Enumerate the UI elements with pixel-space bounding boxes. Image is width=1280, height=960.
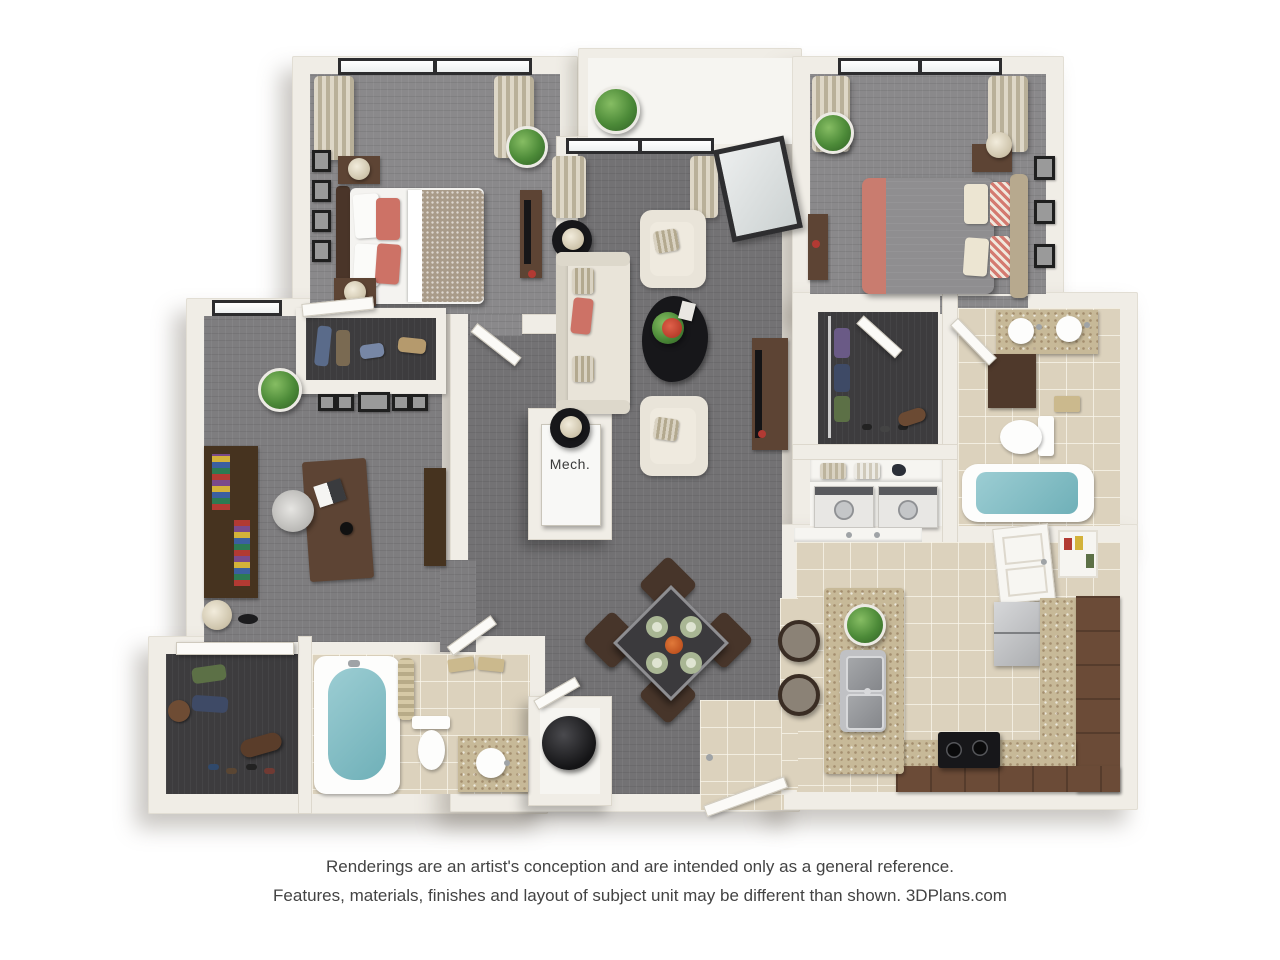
floor-lamp-accent bbox=[238, 614, 258, 624]
table-centerpiece bbox=[665, 636, 683, 654]
table-lamp bbox=[348, 158, 370, 180]
sink-faucet bbox=[864, 688, 871, 695]
washer-door bbox=[834, 500, 854, 520]
sink-faucet bbox=[1084, 322, 1090, 328]
coral-pillow bbox=[570, 297, 594, 335]
window-pane bbox=[215, 303, 279, 313]
table-lamp bbox=[986, 132, 1012, 158]
closet-shoes bbox=[264, 768, 275, 774]
pantry-door-panel bbox=[1002, 533, 1045, 565]
kitchen-cabinets-bottom bbox=[896, 766, 1120, 792]
hookup-valve bbox=[846, 532, 852, 538]
window-pane bbox=[569, 141, 638, 151]
bathtub-water bbox=[976, 472, 1078, 514]
hanging-clothes bbox=[834, 396, 850, 422]
closet-handbag bbox=[168, 700, 190, 722]
hookup-valve bbox=[874, 532, 880, 538]
washer-control-panel bbox=[815, 487, 873, 495]
closet-shoes bbox=[862, 424, 872, 430]
hanging-clothes bbox=[834, 364, 850, 392]
bed-2-coral-throw bbox=[862, 178, 886, 294]
bed-1-sheet-fold bbox=[408, 190, 422, 302]
bedroom-2-window bbox=[838, 58, 1002, 75]
front-door-handle bbox=[706, 754, 713, 761]
decor-red-accent bbox=[528, 270, 536, 278]
toilet-bowl bbox=[1000, 420, 1042, 454]
spice-shelf bbox=[1058, 530, 1098, 578]
vanity-sink bbox=[1008, 318, 1034, 344]
floor-plan-render: Mech. bbox=[0, 0, 1280, 960]
bath-towel bbox=[1054, 396, 1080, 412]
hanging-clothes bbox=[834, 328, 850, 358]
bookshelf-books bbox=[234, 520, 250, 586]
closet-handbag bbox=[397, 337, 426, 355]
stove-burner bbox=[946, 742, 962, 758]
laundry-basket bbox=[820, 463, 846, 479]
bed-1-blanket bbox=[420, 190, 484, 302]
coral-pillow bbox=[375, 243, 402, 285]
desk-lamp bbox=[340, 522, 353, 535]
sink-faucet bbox=[504, 760, 510, 766]
vessel-sink bbox=[476, 748, 506, 778]
gallery-frame bbox=[392, 394, 410, 411]
dryer bbox=[878, 486, 938, 528]
table-lamp bbox=[562, 228, 584, 250]
wall-art-frame bbox=[1034, 244, 1055, 268]
wall-art-frame bbox=[312, 180, 331, 202]
wall-art-frame bbox=[312, 240, 331, 262]
place-setting-plate bbox=[680, 616, 702, 638]
vanity-sink bbox=[1056, 316, 1082, 342]
closet-bath-divider-wall bbox=[298, 636, 312, 814]
spice-jar bbox=[1075, 536, 1083, 550]
window-pane bbox=[437, 61, 529, 72]
living-room-window bbox=[566, 138, 714, 154]
striped-pillow bbox=[572, 268, 594, 294]
bedroom-1-wall-stub bbox=[522, 314, 558, 334]
place-setting-plate bbox=[646, 652, 668, 674]
mech-closet-label: Mech. bbox=[530, 456, 610, 472]
wall-art-frame bbox=[312, 210, 331, 232]
toilet-tank bbox=[412, 716, 450, 729]
pantry-door bbox=[992, 523, 1056, 604]
coral-pillow bbox=[376, 198, 400, 240]
island-plant bbox=[844, 604, 886, 646]
bed-2-headboard bbox=[1010, 174, 1028, 298]
tv-screen bbox=[755, 350, 762, 438]
closet-laundry-wall bbox=[792, 444, 958, 460]
gallery-frame bbox=[358, 392, 390, 412]
window-pane bbox=[922, 61, 999, 72]
balcony-plant bbox=[592, 86, 640, 134]
gallery-frame bbox=[318, 394, 336, 411]
kitchen-hookup-counter bbox=[794, 528, 922, 542]
spice-jar bbox=[1064, 538, 1072, 550]
gallery-frame bbox=[410, 394, 428, 411]
potted-plant bbox=[258, 368, 302, 412]
office-chair bbox=[272, 490, 314, 532]
cream-pillow bbox=[964, 184, 988, 224]
tub-faucet bbox=[348, 660, 360, 667]
office-window bbox=[212, 300, 282, 316]
window-pane bbox=[642, 141, 711, 151]
disclaimer-text: Renderings are an artist's conception an… bbox=[0, 852, 1280, 910]
bedroom-1-curtain-left bbox=[314, 76, 354, 160]
closet-shoes bbox=[226, 768, 237, 774]
washer bbox=[814, 486, 874, 528]
dryer-door bbox=[898, 500, 918, 520]
closet-shoes bbox=[208, 764, 219, 770]
table-lamp bbox=[560, 416, 582, 438]
spice-jar bbox=[1086, 554, 1094, 568]
office-desk bbox=[302, 458, 374, 582]
red-striped-pillow bbox=[990, 182, 1010, 226]
cream-pillow bbox=[963, 237, 990, 277]
disclaimer-line-1: Renderings are an artist's conception an… bbox=[0, 852, 1280, 881]
striped-pillow bbox=[572, 356, 594, 382]
bath-towel bbox=[477, 657, 504, 673]
detergent-bottle bbox=[892, 464, 906, 476]
closet-shoes bbox=[880, 426, 890, 432]
pantry-door-panel bbox=[1005, 565, 1048, 597]
living-curtain-right bbox=[690, 156, 718, 218]
striped-pillow bbox=[652, 228, 679, 254]
office-cabinet bbox=[424, 468, 446, 566]
water-heater bbox=[542, 716, 596, 770]
wall-art-frame bbox=[1034, 200, 1055, 224]
closet-rod bbox=[828, 316, 831, 438]
sofa-armrest bbox=[556, 252, 630, 266]
bathtub-water bbox=[328, 668, 386, 780]
entry-floor bbox=[700, 700, 782, 794]
bedroom-1-window bbox=[338, 58, 532, 75]
stove-cooktop bbox=[938, 732, 1000, 768]
pantry-door-knob bbox=[1041, 559, 1048, 566]
living-curtain-left bbox=[552, 156, 586, 218]
wall-art-frame bbox=[1034, 156, 1055, 180]
stove-burner bbox=[972, 740, 988, 756]
disclaimer-line-2: Features, materials, finishes and layout… bbox=[0, 881, 1280, 910]
vanity-cabinet bbox=[988, 354, 1036, 408]
window-pane bbox=[341, 61, 433, 72]
place-setting-plate bbox=[646, 616, 668, 638]
laundry-basket bbox=[854, 463, 880, 479]
floor-lamp bbox=[202, 600, 232, 630]
dryer-control-panel bbox=[879, 487, 937, 495]
decor-red-accent bbox=[758, 430, 766, 438]
toilet-bowl bbox=[418, 730, 445, 770]
walkin-closet-3-sliding-door bbox=[176, 642, 294, 655]
kitchen-cabinets-right bbox=[1076, 596, 1120, 792]
gallery-frame bbox=[336, 394, 354, 411]
decor-red-accent bbox=[812, 240, 820, 248]
sink-basin bbox=[846, 694, 884, 730]
hanging-clothes bbox=[191, 695, 228, 713]
hanging-clothes bbox=[336, 330, 350, 366]
sink-faucet bbox=[1036, 324, 1042, 330]
red-flowers bbox=[662, 318, 682, 338]
red-striped-pillow bbox=[990, 236, 1010, 278]
place-setting-plate bbox=[680, 652, 702, 674]
shower-curtain bbox=[398, 658, 414, 720]
potted-plant bbox=[812, 112, 854, 154]
bar-stool bbox=[778, 620, 820, 662]
bar-stool bbox=[778, 674, 820, 716]
bookshelf-books bbox=[212, 454, 230, 510]
window-pane bbox=[841, 61, 918, 72]
closet-shoes bbox=[246, 764, 257, 770]
striped-pillow bbox=[653, 416, 680, 441]
sink-basin bbox=[846, 656, 884, 692]
wall-art-frame bbox=[312, 150, 331, 172]
bedroom-1-tv bbox=[524, 200, 531, 264]
potted-plant bbox=[506, 126, 548, 168]
